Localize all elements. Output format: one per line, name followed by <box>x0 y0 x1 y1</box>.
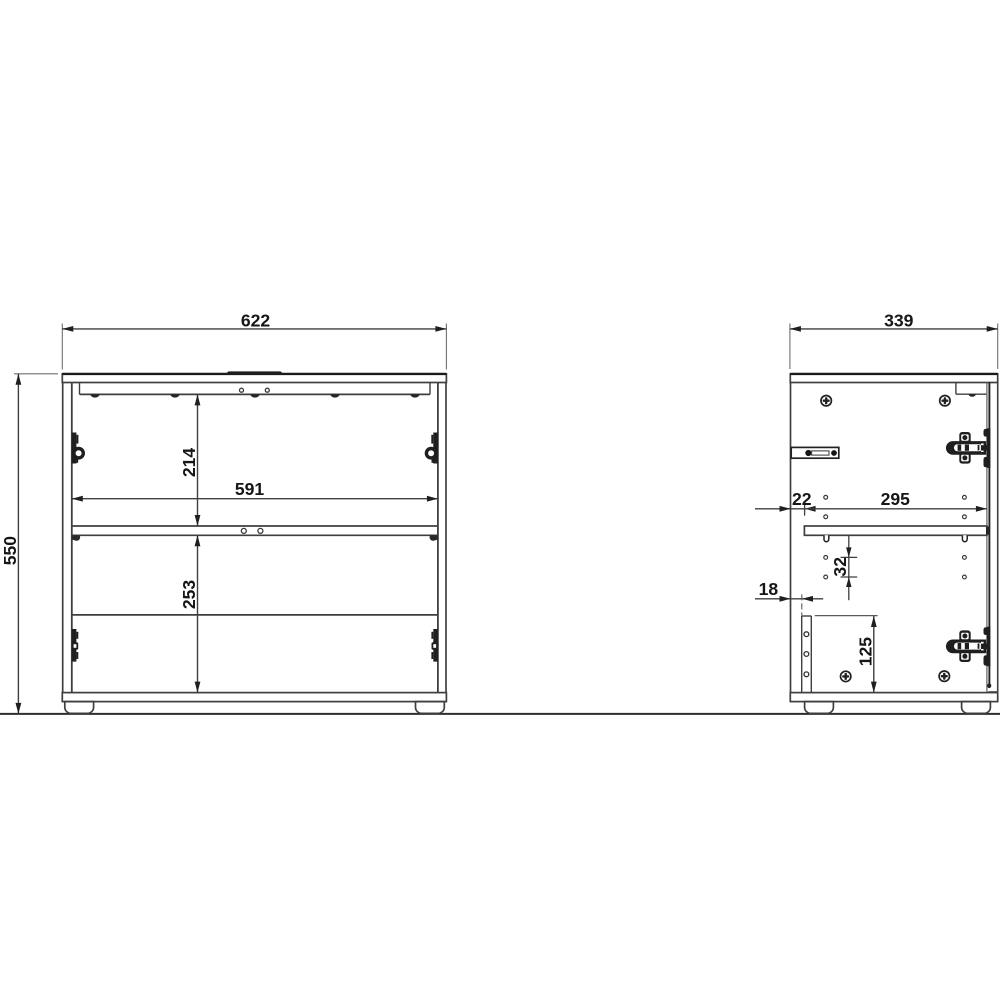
svg-text:339: 339 <box>884 311 914 331</box>
svg-text:550: 550 <box>0 536 20 566</box>
svg-text:22: 22 <box>792 489 812 509</box>
svg-text:591: 591 <box>235 479 265 499</box>
svg-text:622: 622 <box>241 311 271 331</box>
svg-text:214: 214 <box>179 448 199 478</box>
svg-text:125: 125 <box>855 637 875 667</box>
svg-text:295: 295 <box>881 489 911 509</box>
svg-text:253: 253 <box>179 580 199 610</box>
svg-text:18: 18 <box>759 579 779 599</box>
svg-text:32: 32 <box>830 557 850 577</box>
